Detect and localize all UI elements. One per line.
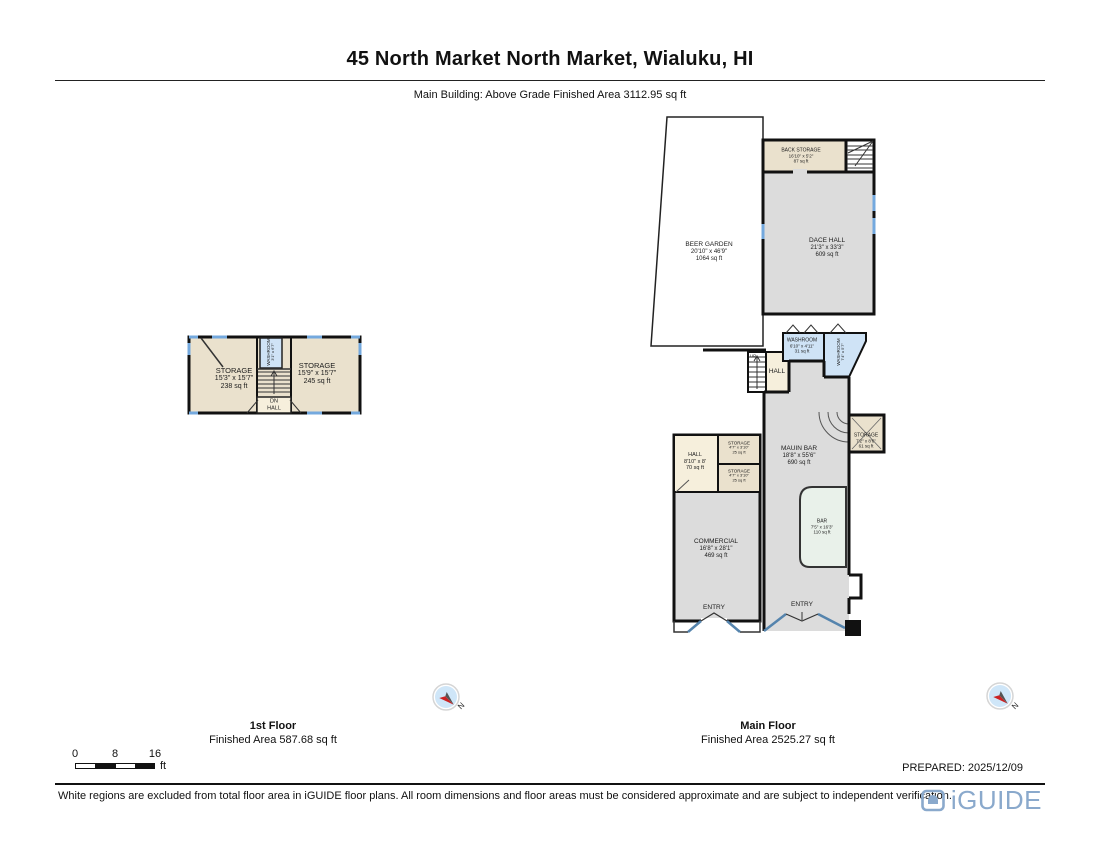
room-label-storage-east: STORAGE 15'9" x 15'7" 245 sq ft [298,361,336,387]
room-label-hall-center: HALL [769,368,785,376]
room-label-mauin-bar: MAUIN BAR 18'8" x 55'6" 690 sq ft [781,445,817,467]
iguide-logo-text: iGUIDE [951,787,1042,813]
floor1-caption: 1st Floor Finished Area 587.68 sq ft [209,720,337,748]
room-label-washroom-side: WASHROOM 7'4" x 5'7" [836,338,846,365]
scale-tick-8: 8 [112,748,118,760]
main-floor-name: Main Floor [701,720,835,734]
compass-icon-left [433,684,459,710]
scale-tick-0: 0 [72,748,78,760]
scale-bar [75,763,155,769]
room-label-commercial: COMMERCIAL 16'8" x 28'1" 469 sq ft [694,538,738,560]
main-floor-drawing [651,117,884,636]
main-floor-caption: Main Floor Finished Area 2525.27 sq ft [701,720,835,748]
scale-segment [115,763,135,769]
room-label-dace-hall: DACE HALL 21'3" x 33'3" 609 sq ft [809,237,845,259]
iguide-logo: iGUIDE [920,787,1042,813]
room-label-hall-west: HALL 8'10" x 8' 70 sq ft [684,452,706,472]
scale-tick-16: 16 [149,748,161,760]
wall-post [845,620,861,636]
room-label-washroom-main: WASHROOM 6'10" x 4'11" 31 sq ft [787,338,817,355]
scale-unit: ft [160,760,166,772]
floor1-finished-area: Finished Area 587.68 sq ft [209,734,337,748]
room-beer-garden [651,117,763,346]
disclaimer-text: White regions are excluded from total fl… [58,790,952,802]
footer-divider [55,783,1045,785]
scale-segment [75,763,95,769]
room-label-entry-left: ENTRY [703,604,725,612]
room-label-bar: BAR 7'5" x 16'3" 110 sq ft [811,519,833,536]
room-label-storage-west: STORAGE 15'3" x 15'7" 238 sq ft [215,366,253,392]
room-label-washroom-1f: WASHROOM 3'1" x 6'7" [266,338,276,365]
iguide-logo-icon [920,787,946,813]
room-label-entry-right: ENTRY [791,601,813,609]
scale-segment [95,763,115,769]
room-label-storage-a: STORAGE 4'7" x 3'10" 25 sq ft [728,441,750,456]
stair-label-dn-hall: DN HALL [267,398,281,411]
door-swings-mid [786,324,846,333]
floor-plan-page: { "header": { "title": "45 North Market … [0,0,1100,850]
scale-segment [135,763,155,769]
stair-label-up: UP [750,353,756,358]
main-floor-finished-area: Finished Area 2525.27 sq ft [701,734,835,748]
room-label-storage-side: STORAGE 7'2" x 8'6" 61 sq ft [854,433,878,450]
floor1-name: 1st Floor [209,720,337,734]
door-opening [793,169,807,176]
room-label-storage-b: STORAGE 4'7" x 3'10" 25 sq ft [728,469,750,484]
room-label-beer-garden: BEER GARDEN 20'10" x 46'9" 1064 sq ft [685,241,732,263]
prepared-date: PREPARED: 2025/12/09 [902,762,1023,774]
floor-plan-drawing [0,0,1100,850]
room-label-back-storage: BACK STORAGE 16'10" x 5'2" 87 sq ft [781,148,820,165]
